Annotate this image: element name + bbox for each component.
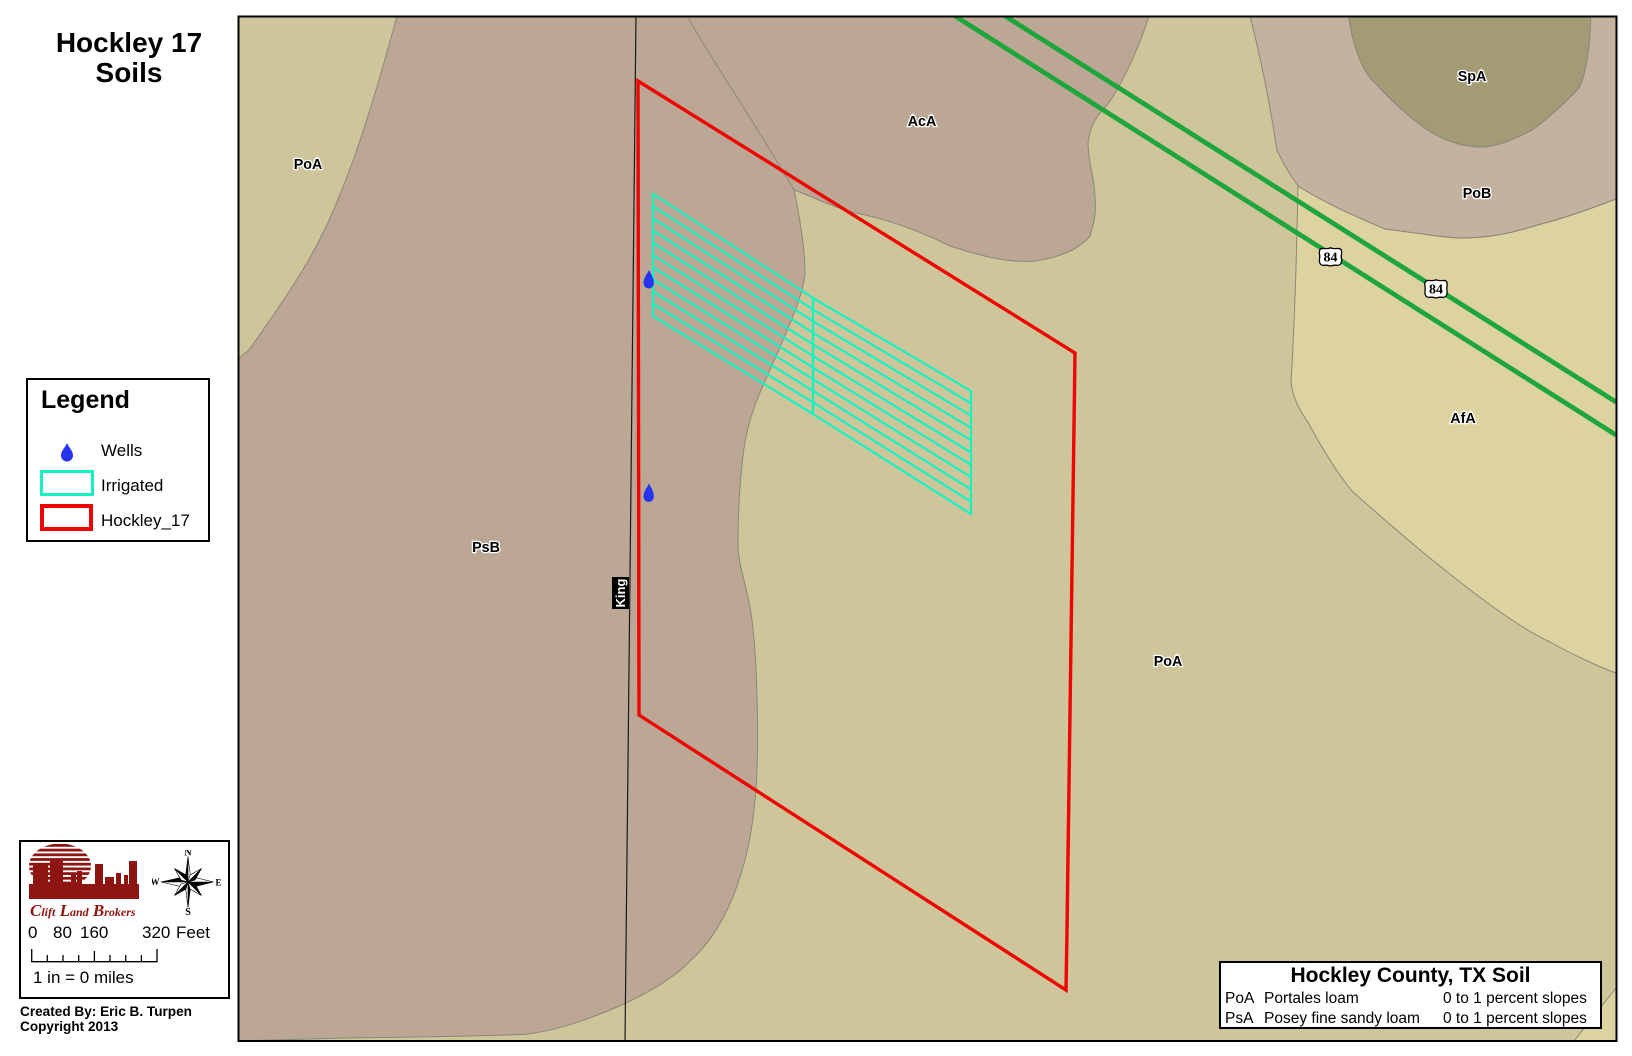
svg-text:W: W	[152, 877, 160, 887]
svg-text:AcA: AcA	[908, 114, 937, 130]
svg-text:PoB: PoB	[1463, 186, 1492, 202]
svg-text:PoA: PoA	[1154, 654, 1183, 670]
svg-text:SpA: SpA	[1458, 69, 1487, 85]
svg-text:PsB: PsB	[472, 540, 500, 556]
svg-text:E: E	[216, 878, 222, 888]
svg-text:PoA: PoA	[294, 157, 323, 173]
svg-text:84: 84	[1429, 283, 1443, 298]
svg-text:King: King	[613, 579, 628, 608]
svg-text:S: S	[185, 907, 191, 916]
svg-text:AfA: AfA	[1450, 411, 1475, 427]
svg-text:84: 84	[1324, 251, 1338, 266]
svg-text:N: N	[184, 850, 192, 859]
svg-text:Clift Land Brokers: Clift Land Brokers	[30, 901, 136, 920]
